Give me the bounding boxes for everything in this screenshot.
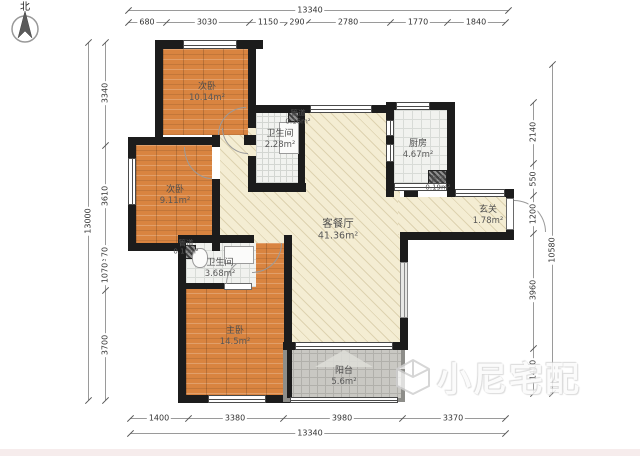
- dim-label: 3610: [101, 184, 110, 208]
- dim-tick: [530, 99, 537, 106]
- wall: [212, 135, 220, 147]
- dim-label: 3380: [223, 413, 247, 422]
- dim-label: 1150: [256, 17, 280, 26]
- wall: [506, 189, 514, 198]
- dim-tick: [102, 397, 109, 404]
- room-label-balcony: 阳台 5.6m²: [331, 365, 356, 389]
- dim-label: 3340: [101, 81, 110, 105]
- dim-label: 3960: [529, 278, 538, 302]
- bathroom2-door: [224, 283, 252, 290]
- dim-label: 13340: [295, 428, 324, 437]
- wall: [186, 283, 224, 289]
- dim-label: 1200: [529, 202, 538, 226]
- watermark-text: 小尼宅配: [437, 352, 581, 401]
- wall: [178, 243, 186, 403]
- balcony-wall: [283, 350, 287, 402]
- dim-label: 680: [137, 17, 156, 26]
- dim-tick: [502, 19, 509, 26]
- dim-tick: [185, 415, 192, 422]
- window: [400, 262, 408, 318]
- dim-line-top-segments: [128, 22, 505, 23]
- window: [183, 40, 237, 49]
- dim-tick: [125, 19, 132, 26]
- balcony-window: [290, 397, 398, 403]
- window: [128, 158, 136, 205]
- dim-label: 3030: [195, 17, 219, 26]
- wall: [400, 232, 408, 262]
- window: [455, 189, 505, 197]
- dim-label: 2140: [529, 120, 538, 144]
- floor-plan: 北: [0, 0, 640, 456]
- compass-arrow-icon: [18, 11, 32, 38]
- window: [386, 120, 394, 136]
- dim-label: 2780: [336, 17, 360, 26]
- room-label-bedroom2: 次卧 9.11m²: [160, 184, 191, 208]
- dim-label: 10580: [548, 235, 557, 264]
- dim-line-right-total: [552, 64, 553, 393]
- bottom-strip: [0, 449, 640, 456]
- dim-tick: [444, 19, 451, 26]
- dim-tick: [102, 142, 109, 149]
- dim-tick: [549, 61, 556, 68]
- dim-line-right-segments: [533, 102, 534, 393]
- dim-label: 1840: [464, 17, 488, 26]
- wall: [400, 232, 512, 240]
- dim-tick: [387, 19, 394, 26]
- wall: [128, 137, 220, 145]
- dim-label: 13340: [295, 5, 324, 14]
- room-label-bathroom2: 卫生间 3.68m²: [205, 257, 236, 281]
- dim-tick: [530, 345, 537, 352]
- room-label-kitchen: 厨房 4.67m²: [403, 138, 434, 162]
- wall: [386, 136, 394, 144]
- dim-tick: [502, 415, 509, 422]
- dim-tick: [127, 430, 134, 437]
- room-label-bedroom1: 次卧 10.14m²: [189, 81, 225, 105]
- dim-label: 290: [287, 17, 306, 26]
- dim-tick: [399, 415, 406, 422]
- room-label-master: 主卧 14.5m²: [220, 325, 251, 349]
- dim-label: 3700: [101, 333, 110, 357]
- dim-tick: [280, 415, 287, 422]
- balcony-sliding-door: [295, 342, 393, 350]
- dim-label: 70: [101, 245, 110, 259]
- dim-tick: [163, 19, 170, 26]
- dim-tick: [502, 430, 509, 437]
- window: [310, 105, 372, 113]
- dim-tick: [102, 287, 109, 294]
- room-label-bathroom1: 卫生间 2.28m²: [265, 128, 296, 152]
- wall: [155, 40, 163, 145]
- dim-label: 3370: [441, 413, 465, 422]
- room-label-living: 客餐厅 41.36m²: [318, 217, 358, 244]
- dim-tick: [530, 160, 537, 167]
- watermark-cube-icon: [393, 357, 433, 397]
- wall: [212, 179, 220, 251]
- dim-tick: [505, 7, 512, 14]
- window: [386, 144, 394, 162]
- dim-tick: [85, 39, 92, 46]
- entry-door: [506, 198, 514, 230]
- watermark: 小尼宅配: [393, 352, 581, 401]
- dim-tick: [102, 39, 109, 46]
- wall: [386, 162, 394, 197]
- compass: 北: [2, 0, 48, 48]
- dim-tick: [530, 192, 537, 199]
- dim-label: 3980: [330, 413, 354, 422]
- dim-label: 1770: [406, 17, 430, 26]
- wall: [248, 40, 256, 128]
- dim-tick: [125, 7, 132, 14]
- dim-tick: [246, 19, 253, 26]
- room-label-duct-top: 管道 0.16m²: [285, 108, 310, 125]
- room-label-duct-kitchen: 管道 0.19m²: [425, 174, 450, 191]
- room-label-entry: 玄关 1.78m²: [473, 204, 504, 228]
- window: [208, 395, 266, 403]
- dim-tick: [127, 415, 134, 422]
- dim-label: 1070: [101, 261, 110, 285]
- dim-label: 1400: [147, 413, 171, 422]
- room-label-duct-left: 管道 0.16m²: [173, 238, 198, 255]
- dim-label: 550: [529, 169, 538, 188]
- wall: [248, 183, 306, 192]
- window: [396, 102, 430, 110]
- dim-tick: [85, 397, 92, 404]
- dim-label: 13000: [84, 206, 93, 235]
